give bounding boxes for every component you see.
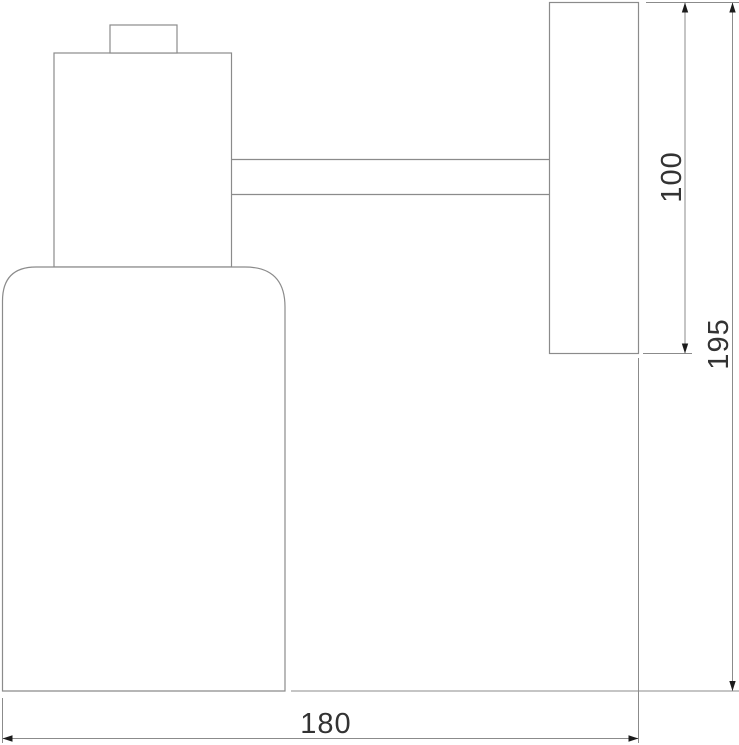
arrowhead-195-down <box>729 681 735 691</box>
dimension-text-180: 180 <box>300 708 351 740</box>
dimension-195-group: 195 <box>703 3 736 692</box>
arrowhead-195-up <box>729 3 735 13</box>
dimension-drawing-canvas: 100 195 180 <box>0 0 739 745</box>
arrowhead-100-down <box>682 344 688 354</box>
dimension-text-195: 195 <box>703 318 735 369</box>
arrowhead-180-right <box>629 735 639 741</box>
arrowhead-180-left <box>3 735 13 741</box>
dimension-100-group: 100 <box>656 3 688 354</box>
lamp-body <box>54 53 232 267</box>
lamp-dimension-drawing: 100 195 180 <box>0 0 739 745</box>
dimension-180-group: 180 <box>3 708 639 742</box>
dimension-text-100: 100 <box>656 151 688 202</box>
fixture-outline-group <box>3 3 639 692</box>
lamp-top-knob <box>110 25 177 53</box>
arrowhead-100-up <box>682 3 688 13</box>
wall-mount-plate <box>550 3 639 354</box>
lamp-shade <box>3 267 286 691</box>
